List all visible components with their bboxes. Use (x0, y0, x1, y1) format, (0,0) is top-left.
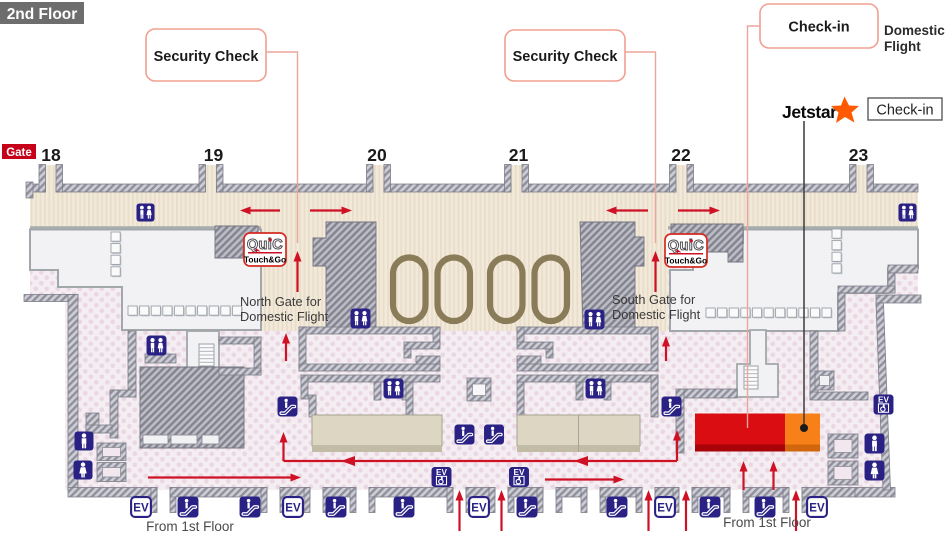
svg-text:Domestic Flight: Domestic Flight (612, 307, 701, 322)
svg-text:QuiC: QuiC (247, 237, 283, 253)
svg-text:From 1st Floor: From 1st Floor (723, 515, 811, 530)
svg-text:23: 23 (849, 145, 869, 165)
svg-text:Security Check: Security Check (154, 49, 260, 65)
svg-text:Touch&Go: Touch&Go (244, 255, 286, 265)
svg-text:North Gate for: North Gate for (240, 294, 322, 309)
svg-text:Security Check: Security Check (513, 49, 619, 65)
svg-text:QuiC: QuiC (668, 238, 704, 254)
svg-text:18: 18 (41, 145, 61, 165)
svg-text:19: 19 (204, 145, 224, 165)
svg-text:Flight: Flight (884, 39, 921, 54)
svg-text:Jetstar: Jetstar (782, 102, 837, 122)
svg-text:Domestic Flight: Domestic Flight (240, 309, 329, 324)
svg-text:2nd Floor: 2nd Floor (7, 6, 78, 23)
svg-text:Gate: Gate (6, 147, 32, 159)
svg-text:22: 22 (671, 145, 691, 165)
svg-text:20: 20 (367, 145, 387, 165)
svg-text:Check-in: Check-in (788, 20, 849, 36)
svg-text:21: 21 (509, 145, 529, 165)
svg-text:South Gate for: South Gate for (612, 292, 696, 307)
svg-text:From 1st Floor: From 1st Floor (146, 519, 234, 534)
svg-text:Domestic: Domestic (884, 23, 945, 38)
svg-text:Touch&Go: Touch&Go (665, 256, 707, 266)
svg-text:Check-in: Check-in (876, 103, 933, 119)
